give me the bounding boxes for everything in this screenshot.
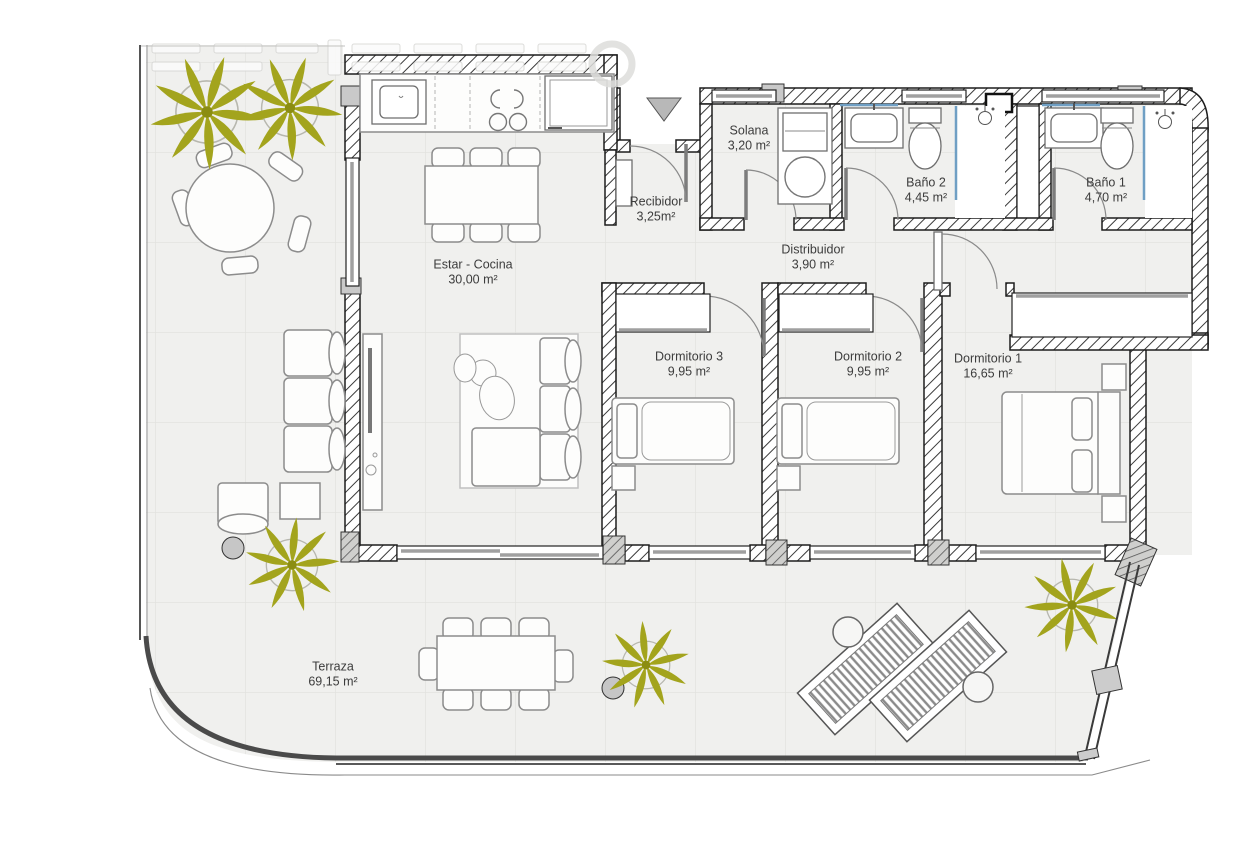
- sink-icon: [845, 104, 903, 148]
- dining-table-indoor: [425, 148, 540, 242]
- washer-dryer-icon: [778, 108, 832, 204]
- hall-cabinet: [616, 160, 632, 206]
- floor-plan-drawing: [0, 0, 1250, 864]
- side-table: [833, 617, 863, 647]
- kitchen-sink-icon: [372, 80, 426, 124]
- planter-pot: [222, 537, 244, 559]
- tv-unit: [363, 334, 382, 510]
- toilet-icon: [909, 108, 941, 169]
- kitchen-counter: [360, 74, 614, 132]
- toilet-icon: [1101, 108, 1133, 169]
- floor-plan: Estar - Cocina 30,00 m² Recibidor 3,25m²…: [0, 0, 1250, 864]
- shower-area: [1145, 106, 1192, 218]
- railing-post: [1092, 666, 1122, 695]
- outdoor-sofa: [284, 330, 345, 472]
- sink-icon: [1045, 104, 1103, 148]
- side-table: [963, 672, 993, 702]
- sofa-rug: [454, 334, 581, 488]
